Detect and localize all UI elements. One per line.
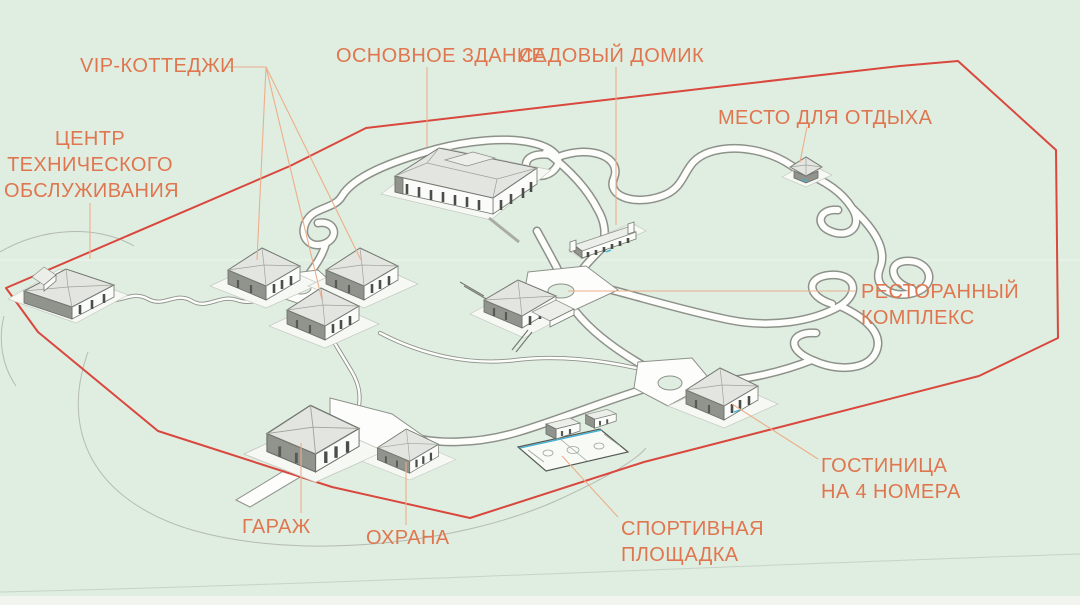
label-sports: СПОРТИВНАЯ ПЛОЩАДКА — [621, 516, 764, 568]
label-restaurant-line1: РЕСТОРАННЫЙ — [861, 279, 1019, 305]
sports-ground — [518, 409, 628, 471]
label-hotel-line1: ГОСТИНИЦА — [821, 453, 961, 479]
label-sports-line1: СПОРТИВНАЯ — [621, 516, 764, 542]
label-service-center-line1: ЦЕНТР — [4, 126, 176, 152]
label-service-center-line3: ОБСЛУЖИВАНИЯ — [4, 178, 176, 204]
site-plan: VIP-КОТТЕДЖИ ОСНОВНОЕ ЗДАНИЕ САДОВЫЙ ДОМ… — [0, 0, 1080, 605]
label-vip-cottages: VIP-КОТТЕДЖИ — [80, 55, 235, 78]
page-edge-strip — [0, 596, 1080, 605]
label-main-building: ОСНОВНОЕ ЗДАНИЕ — [336, 45, 545, 68]
label-service-center: ЦЕНТР ТЕХНИЧЕСКОГО ОБСЛУЖИВАНИЯ — [4, 126, 176, 204]
sports-pavilion-2 — [586, 409, 617, 428]
label-security: ОХРАНА — [366, 527, 450, 550]
label-hotel-line2: НА 4 НОМЕРА — [821, 479, 961, 505]
label-garage: ГАРАЖ — [242, 516, 311, 539]
label-service-center-line2: ТЕХНИЧЕСКОГО — [4, 152, 176, 178]
label-garden-house: САДОВЫЙ ДОМИК — [519, 45, 704, 68]
label-hotel: ГОСТИНИЦА НА 4 НОМЕРА — [821, 453, 961, 505]
label-sports-line2: ПЛОЩАДКА — [621, 542, 764, 568]
label-rest-area: МЕСТО ДЛЯ ОТДЫХА — [718, 107, 932, 130]
label-restaurant: РЕСТОРАННЫЙ КОМПЛЕКС — [861, 279, 1019, 331]
hotel-roundabout — [658, 376, 682, 390]
label-leader-lines — [90, 67, 856, 525]
label-restaurant-line2: КОМПЛЕКС — [861, 305, 1019, 331]
